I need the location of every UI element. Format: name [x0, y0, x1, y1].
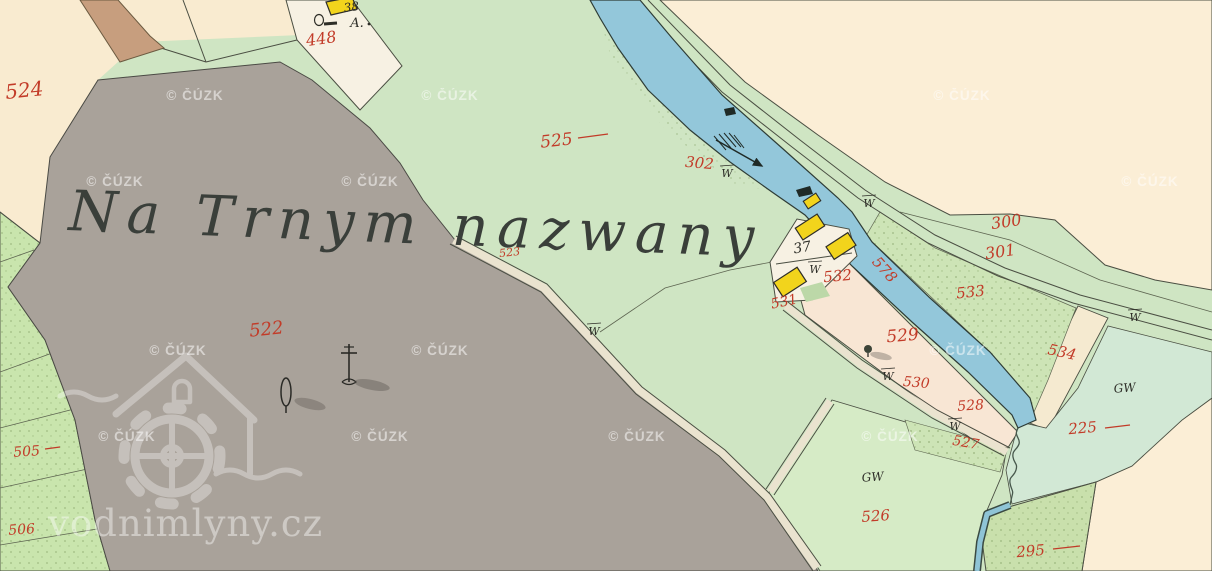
cuzk-watermark: © ČÚZK: [86, 174, 143, 189]
cuzk-watermark: © ČÚZK: [421, 88, 478, 103]
landuse-w-6: W: [588, 325, 601, 338]
parcel-label-526: 526: [861, 506, 891, 526]
landuse-gw-1: GW: [861, 469, 886, 485]
parcel-label-522: 522: [248, 317, 284, 341]
parcel-label-295: 295: [1015, 541, 1046, 562]
parcel-label-506: 506: [8, 521, 36, 539]
cuzk-watermark: © ČÚZK: [341, 174, 398, 189]
cuzk-watermark: © ČÚZK: [411, 343, 468, 358]
landuse-w-3: W: [809, 263, 822, 276]
vodnimlyny-watermark-text: vodnimlyny.cz: [47, 502, 323, 545]
parcel-label-302: 302: [684, 153, 714, 173]
parcel-label-533: 533: [955, 282, 985, 303]
parcel-label-225: 225: [1067, 418, 1098, 439]
cuzk-watermark: © ČÚZK: [1121, 174, 1178, 189]
landuse-w-4: W: [882, 370, 895, 383]
landuse-w-1: W: [721, 167, 734, 180]
house-number-38: 38: [343, 0, 360, 15]
parcel-label-525: 525: [539, 129, 573, 152]
cuzk-watermark: © ČÚZK: [608, 429, 665, 444]
cuzk-watermark: © ČÚZK: [166, 88, 223, 103]
cuzk-watermark: © ČÚZK: [98, 429, 155, 444]
cuzk-watermark: © ČÚZK: [351, 429, 408, 444]
cadastral-map-viewport[interactable]: Na Trnym nazwany 524 448 525 302 300 301…: [0, 0, 1212, 571]
cuzk-watermark: © ČÚZK: [861, 429, 918, 444]
parcel-label-505: 505: [13, 443, 41, 461]
cuzk-watermark: © ČÚZK: [929, 343, 986, 358]
parcel-label-524: 524: [4, 76, 44, 104]
house-number-37: 37: [792, 239, 812, 258]
parcel-label-523: 523: [499, 245, 521, 260]
parcel-label-530: 530: [902, 374, 930, 392]
cuzk-watermark: © ČÚZK: [933, 88, 990, 103]
landuse-gw-2: GW: [1113, 380, 1138, 396]
landuse-w-5: W: [949, 420, 962, 433]
cadastral-map[interactable]: Na Trnym nazwany 524 448 525 302 300 301…: [0, 0, 1212, 571]
parcel-label-532: 532: [823, 266, 853, 286]
cuzk-watermark: © ČÚZK: [149, 343, 206, 358]
landuse-w-7: W: [1129, 311, 1142, 324]
letter-a: A.: [349, 16, 364, 31]
parcel-label-529: 529: [886, 325, 920, 348]
parcel-label-528: 528: [957, 397, 985, 415]
landuse-w-2: W: [863, 197, 876, 210]
